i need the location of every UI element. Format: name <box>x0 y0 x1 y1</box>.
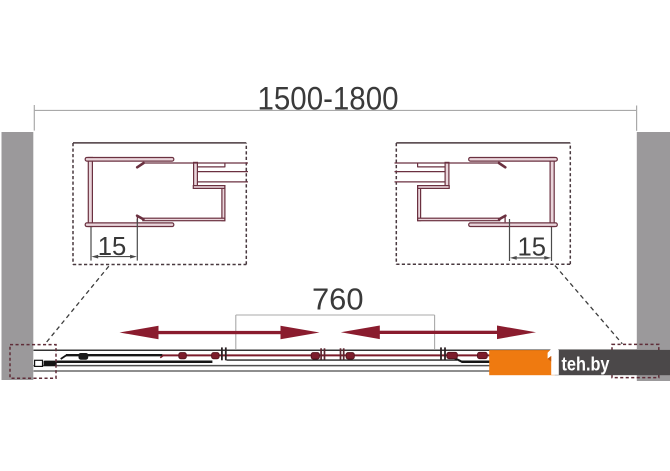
svg-text:15: 15 <box>98 233 127 261</box>
svg-text:teh.by: teh.by <box>562 354 610 375</box>
svg-text:760: 760 <box>312 283 364 317</box>
svg-text:1500-1800: 1500-1800 <box>258 81 399 117</box>
svg-text:15: 15 <box>518 234 547 262</box>
